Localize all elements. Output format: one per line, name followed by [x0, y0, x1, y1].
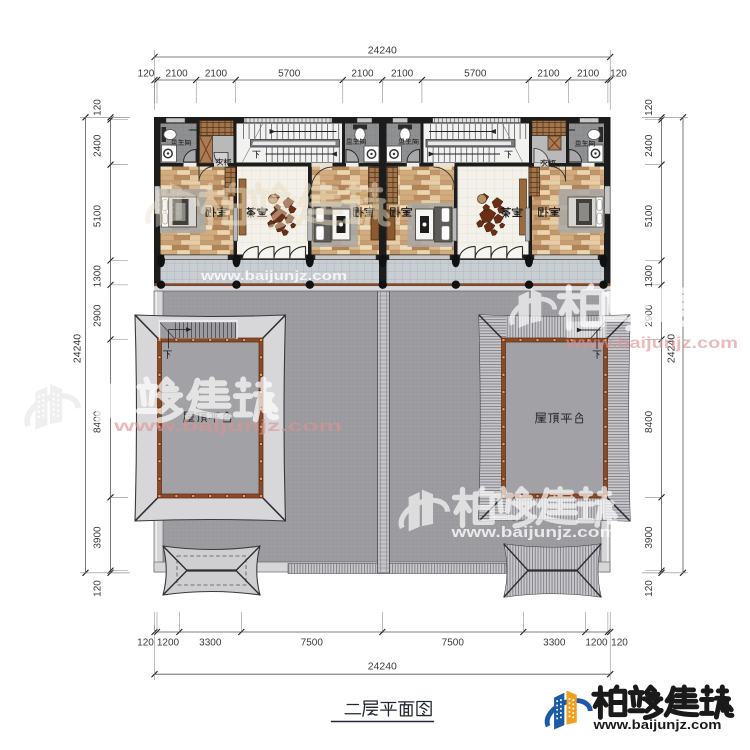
svg-text:120: 120: [610, 69, 627, 80]
svg-text:3300: 3300: [543, 638, 566, 649]
svg-text:5700: 5700: [464, 69, 487, 80]
svg-text:120: 120: [138, 69, 155, 80]
svg-text:120: 120: [644, 580, 655, 597]
svg-text:1300: 1300: [644, 265, 655, 288]
svg-text:2900: 2900: [93, 304, 104, 327]
svg-text:www.baijunjz.com: www.baijunjz.com: [592, 718, 721, 732]
svg-text:1300: 1300: [93, 265, 104, 288]
svg-text:120: 120: [93, 99, 104, 116]
svg-text:2100: 2100: [577, 69, 600, 80]
svg-text:www.baijunjz.com: www.baijunjz.com: [200, 268, 347, 283]
svg-text:3300: 3300: [199, 638, 222, 649]
svg-text:2100: 2100: [351, 69, 374, 80]
svg-text:24240: 24240: [368, 661, 397, 673]
svg-text:2100: 2100: [537, 69, 560, 80]
svg-text:7500: 7500: [442, 638, 465, 649]
svg-text:24240: 24240: [72, 334, 84, 363]
svg-text:1200: 1200: [585, 638, 608, 649]
svg-text:120: 120: [137, 638, 154, 649]
svg-text:8400: 8400: [644, 410, 655, 433]
svg-text:24240: 24240: [368, 45, 397, 57]
svg-text:120: 120: [644, 99, 655, 116]
svg-text:3900: 3900: [644, 526, 655, 549]
svg-text:2400: 2400: [644, 134, 655, 157]
svg-text:5100: 5100: [93, 205, 104, 228]
svg-text:1200: 1200: [157, 638, 180, 649]
svg-text:120: 120: [611, 638, 628, 649]
svg-text:2100: 2100: [165, 69, 188, 80]
svg-text:2100: 2100: [391, 69, 414, 80]
svg-text:www.baijunjz.com: www.baijunjz.com: [565, 335, 738, 352]
svg-text:2100: 2100: [205, 69, 228, 80]
svg-text:www.baijunjz.com: www.baijunjz.com: [112, 418, 342, 435]
svg-text:7500: 7500: [301, 638, 324, 649]
svg-text:5100: 5100: [644, 205, 655, 228]
svg-text:www.baijunjz.com: www.baijunjz.com: [450, 524, 616, 541]
svg-text:3900: 3900: [93, 526, 104, 549]
svg-text:2400: 2400: [93, 134, 104, 157]
svg-text:5700: 5700: [278, 69, 301, 80]
svg-text:120: 120: [93, 580, 104, 597]
